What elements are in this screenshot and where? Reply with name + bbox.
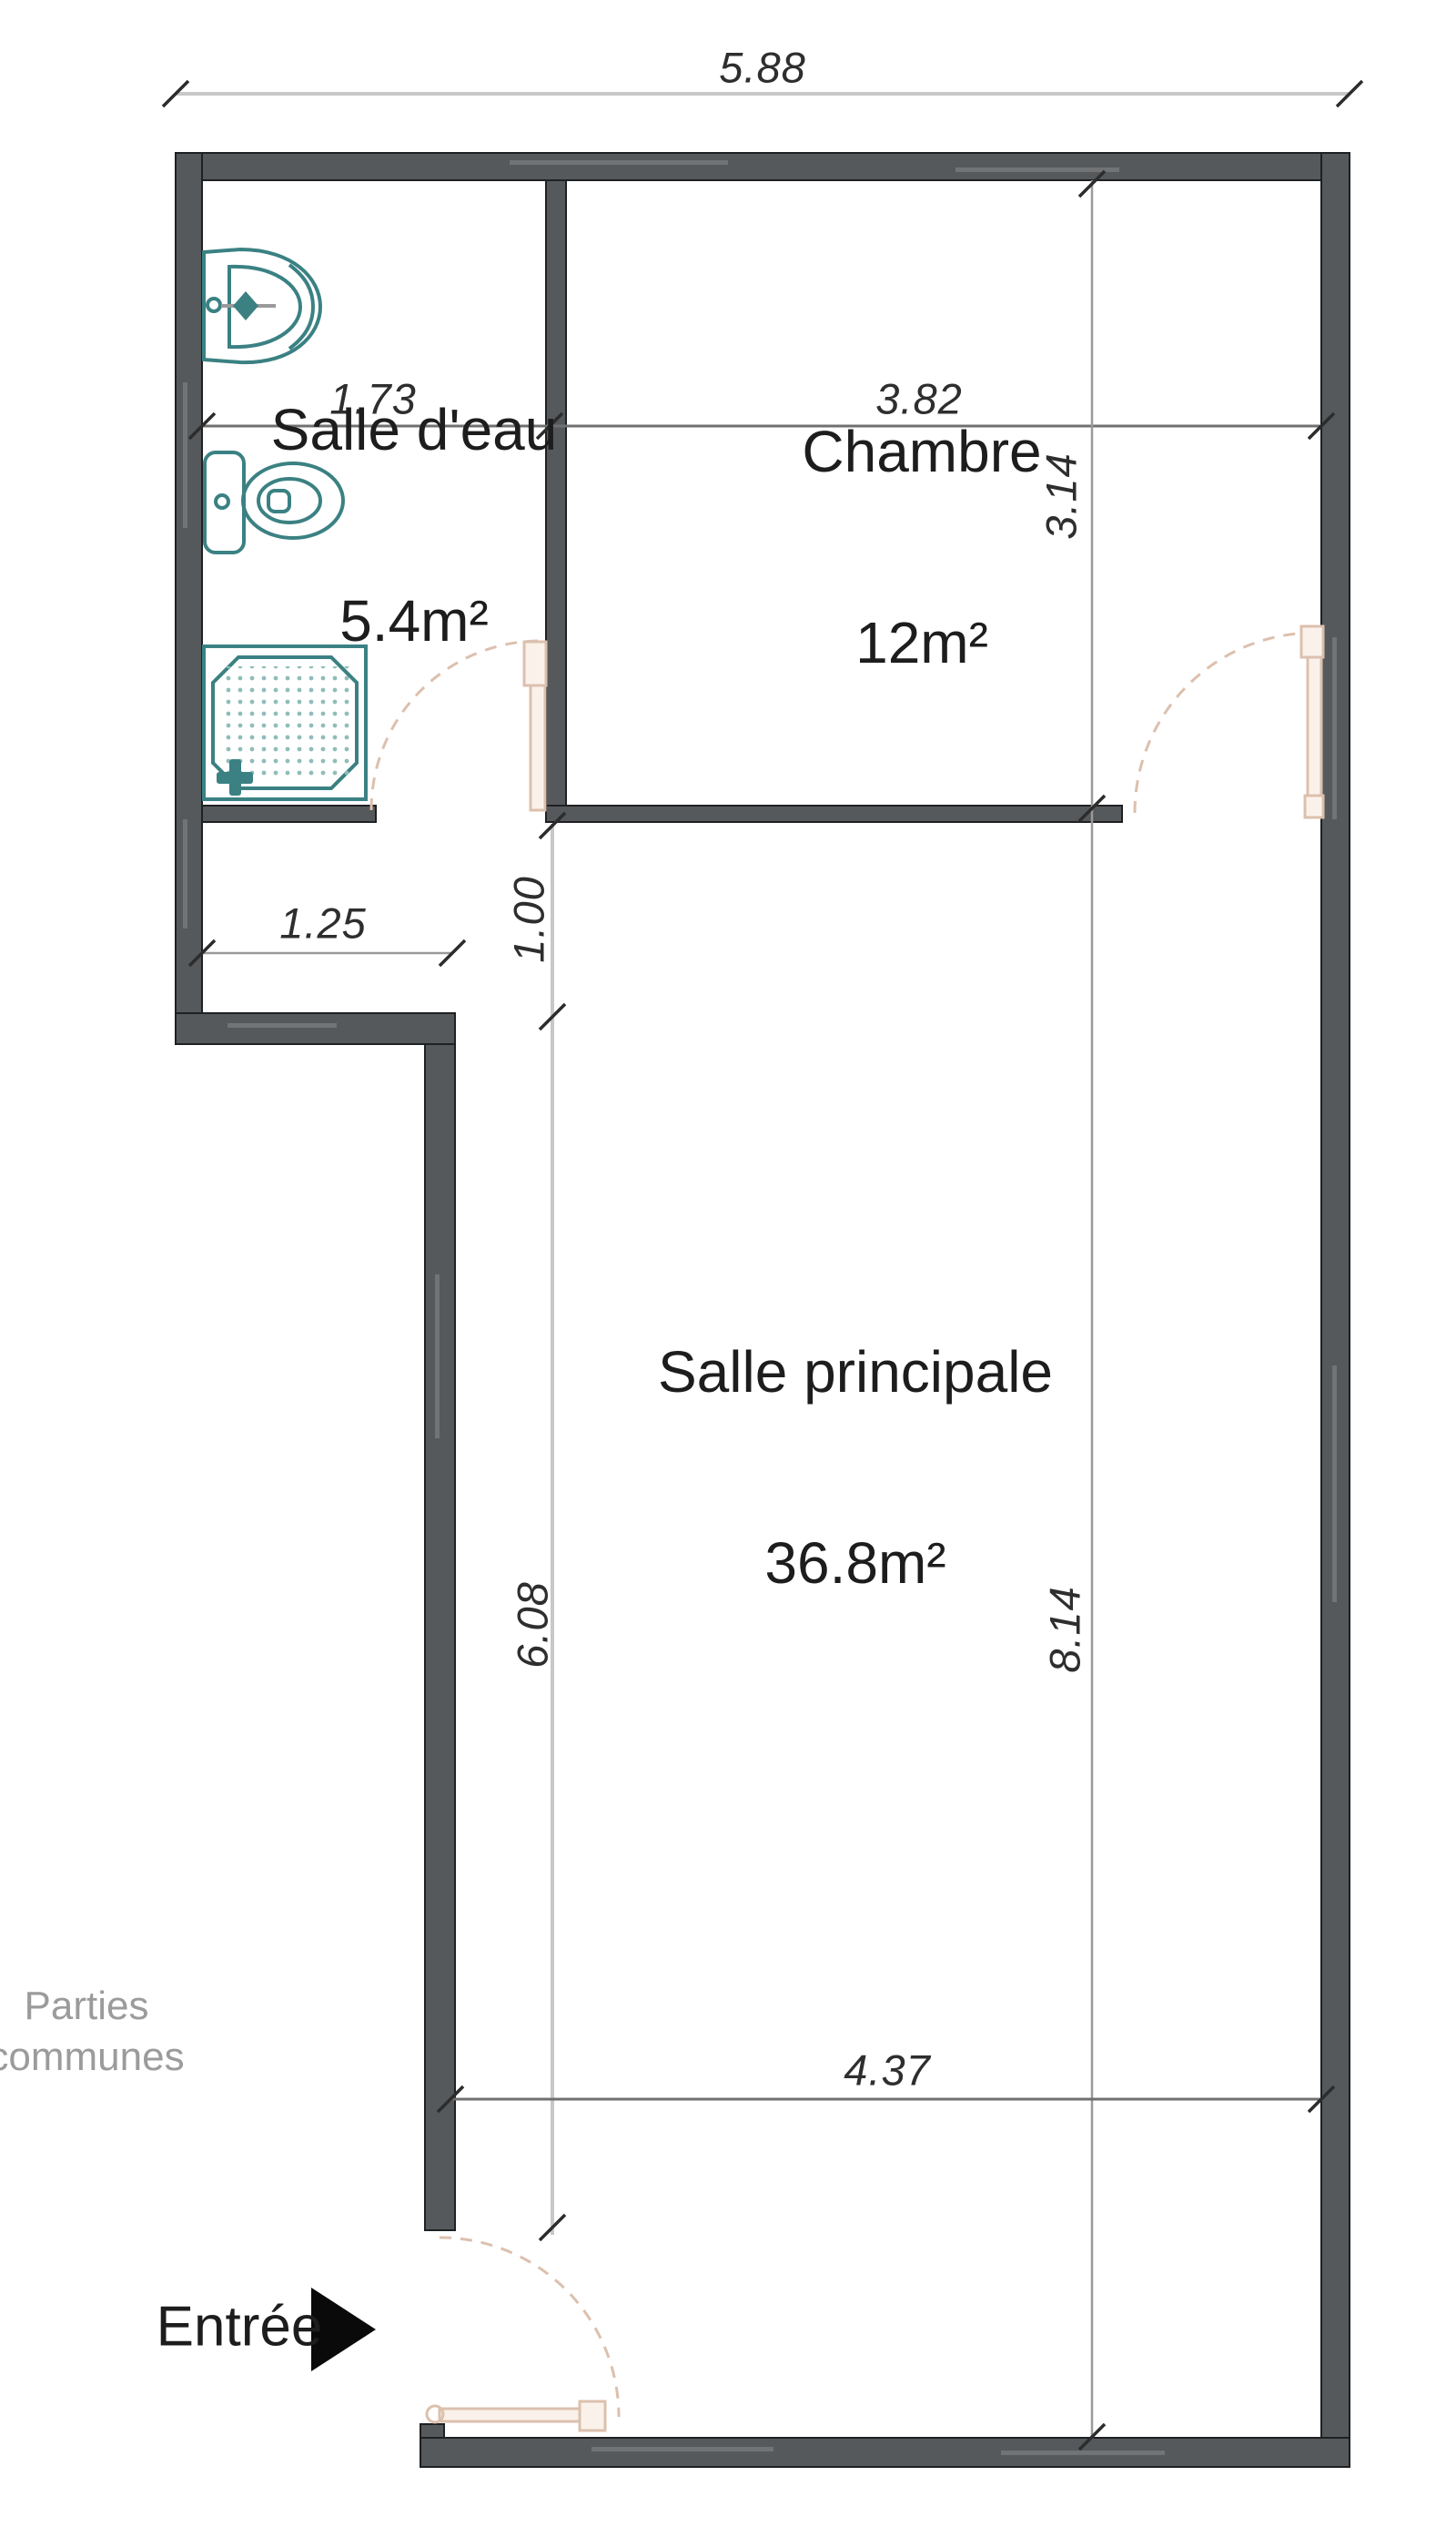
room-area: 5.4m² [271, 589, 558, 653]
floor-plan: 5.88 1.73 3.82 1.25 4.37 1.00 6.08 3.14 … [0, 0, 1456, 2527]
bedroom-door [1135, 626, 1323, 817]
room-area: 36.8m² [658, 1531, 1053, 1595]
right-wall [1321, 153, 1350, 2467]
room-name: Salle principale [658, 1340, 1053, 1404]
bathroom-bottom-wall [202, 806, 376, 822]
top-wall [176, 153, 1350, 180]
room-label-salle-deau: Salle d'eau 5.4m² [271, 270, 558, 780]
dim-notch-width: 1.25 [279, 898, 366, 949]
bedroom-door-arc [1135, 633, 1315, 813]
dim-passage-height: 1.00 [504, 876, 554, 962]
bottom-wall [420, 2438, 1350, 2467]
common-areas-label: Parties communes [0, 1981, 185, 2083]
entrance-label: Entrée [157, 2295, 323, 2360]
left-wall [176, 153, 202, 1044]
room-area: 12m² [802, 611, 1041, 675]
entrance-door-arc [440, 2238, 619, 2417]
entrance-door [427, 2238, 619, 2431]
dim-chambre-height: 3.14 [1036, 452, 1087, 539]
room-label-salle-principale: Salle principale 36.8m² [658, 1213, 1053, 1722]
dim-overall-width: 5.88 [719, 43, 805, 93]
bedroom-bottom-wall [546, 806, 1122, 822]
bedroom-door-leaf [1308, 633, 1321, 813]
room-label-chambre: Chambre 12m² [802, 292, 1041, 802]
notch-wall-horizontal [176, 1013, 455, 1044]
dim-main-room-width: 4.37 [844, 2045, 930, 2096]
bottom-wall-step [420, 2424, 444, 2438]
room-name: Salle d'eau [271, 398, 558, 462]
dim-main-room-left-height: 6.08 [508, 1581, 558, 1668]
notch-wall-vertical [425, 1044, 455, 2230]
room-name: Chambre [802, 420, 1041, 483]
